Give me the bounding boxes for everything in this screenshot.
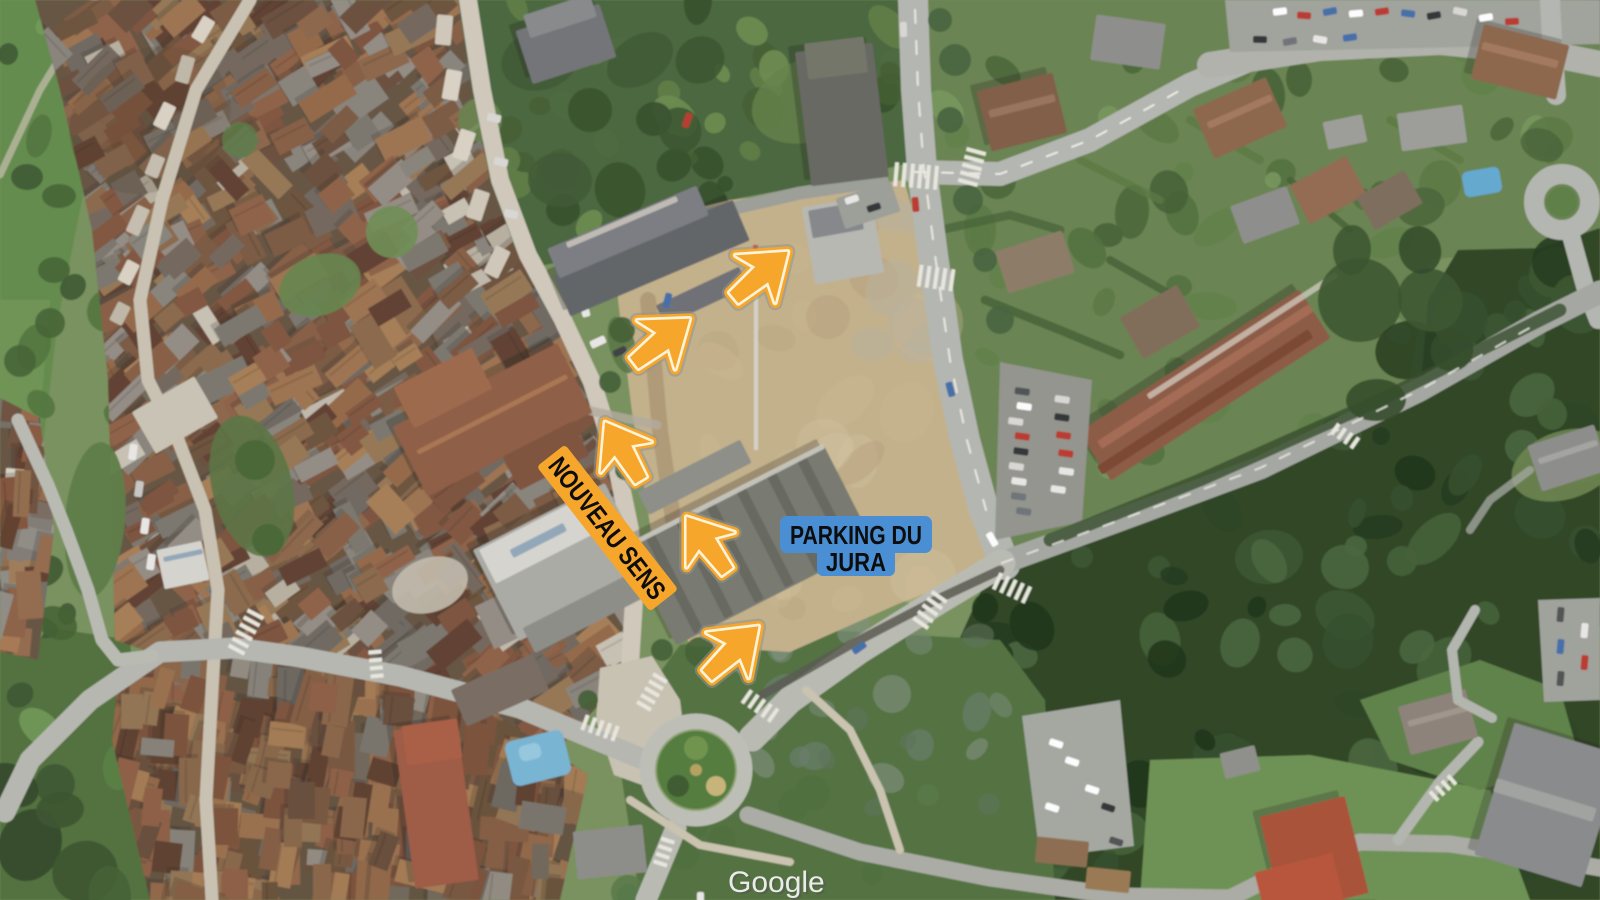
svg-text:JURA: JURA [826, 547, 886, 577]
svg-text:Google: Google [728, 866, 825, 899]
svg-text:PARKING DU: PARKING DU [790, 520, 922, 550]
